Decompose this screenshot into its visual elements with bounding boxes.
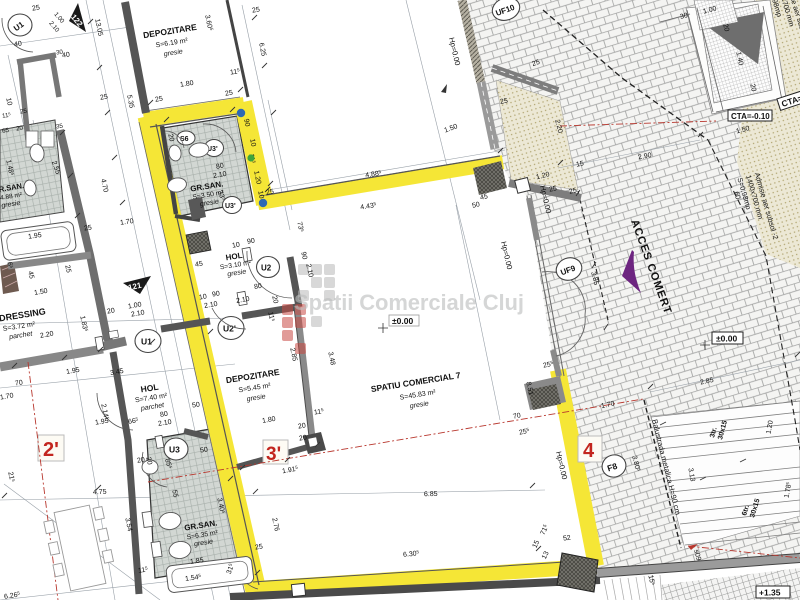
svg-text:Spatii Comerciale Cluj: Spatii Comerciale Cluj <box>294 290 524 315</box>
svg-text:50: 50 <box>200 446 209 454</box>
svg-text:10: 10 <box>199 293 208 301</box>
svg-text:25: 25 <box>32 4 41 12</box>
svg-text:25: 25 <box>84 224 93 232</box>
svg-text:90: 90 <box>247 238 256 246</box>
svg-text:+1.35: +1.35 <box>759 588 781 598</box>
svg-text:80: 80 <box>160 411 169 419</box>
svg-text:25: 25 <box>155 96 164 104</box>
svg-text:U3': U3' <box>225 203 236 210</box>
svg-text:80: 80 <box>254 283 263 291</box>
svg-text:25: 25 <box>549 185 558 193</box>
svg-text:20: 20 <box>298 422 307 430</box>
svg-text:20: 20 <box>299 434 308 442</box>
svg-text:70: 70 <box>15 379 24 387</box>
svg-text:50: 50 <box>192 401 201 409</box>
svg-text:80: 80 <box>216 163 225 171</box>
svg-text:4.75: 4.75 <box>93 489 107 496</box>
svg-text:CTA=-0.10: CTA=-0.10 <box>731 112 770 121</box>
svg-text:25: 25 <box>500 98 509 106</box>
svg-text:±0.00: ±0.00 <box>716 334 737 344</box>
svg-text:25: 25 <box>255 543 264 551</box>
svg-text:U3: U3 <box>169 445 180 455</box>
svg-text:45: 45 <box>195 261 204 269</box>
svg-text:40: 40 <box>14 40 23 48</box>
svg-text:15: 15 <box>576 160 585 168</box>
svg-text:6.85: 6.85 <box>424 491 438 498</box>
svg-text:20: 20 <box>137 457 146 465</box>
svg-text:2': 2' <box>43 439 59 461</box>
svg-text:25: 25 <box>100 94 109 102</box>
svg-text:52: 52 <box>563 535 572 543</box>
svg-text:U2: U2 <box>261 264 272 273</box>
svg-text:25: 25 <box>252 6 261 14</box>
svg-text:4: 4 <box>583 440 595 462</box>
svg-text:25: 25 <box>266 188 275 196</box>
svg-text:U1: U1 <box>141 337 152 347</box>
svg-text:±0.00: ±0.00 <box>392 316 413 326</box>
svg-text:10: 10 <box>232 242 241 250</box>
svg-text:25: 25 <box>225 90 234 98</box>
svg-text:90: 90 <box>212 290 221 298</box>
svg-text:20: 20 <box>107 307 116 315</box>
